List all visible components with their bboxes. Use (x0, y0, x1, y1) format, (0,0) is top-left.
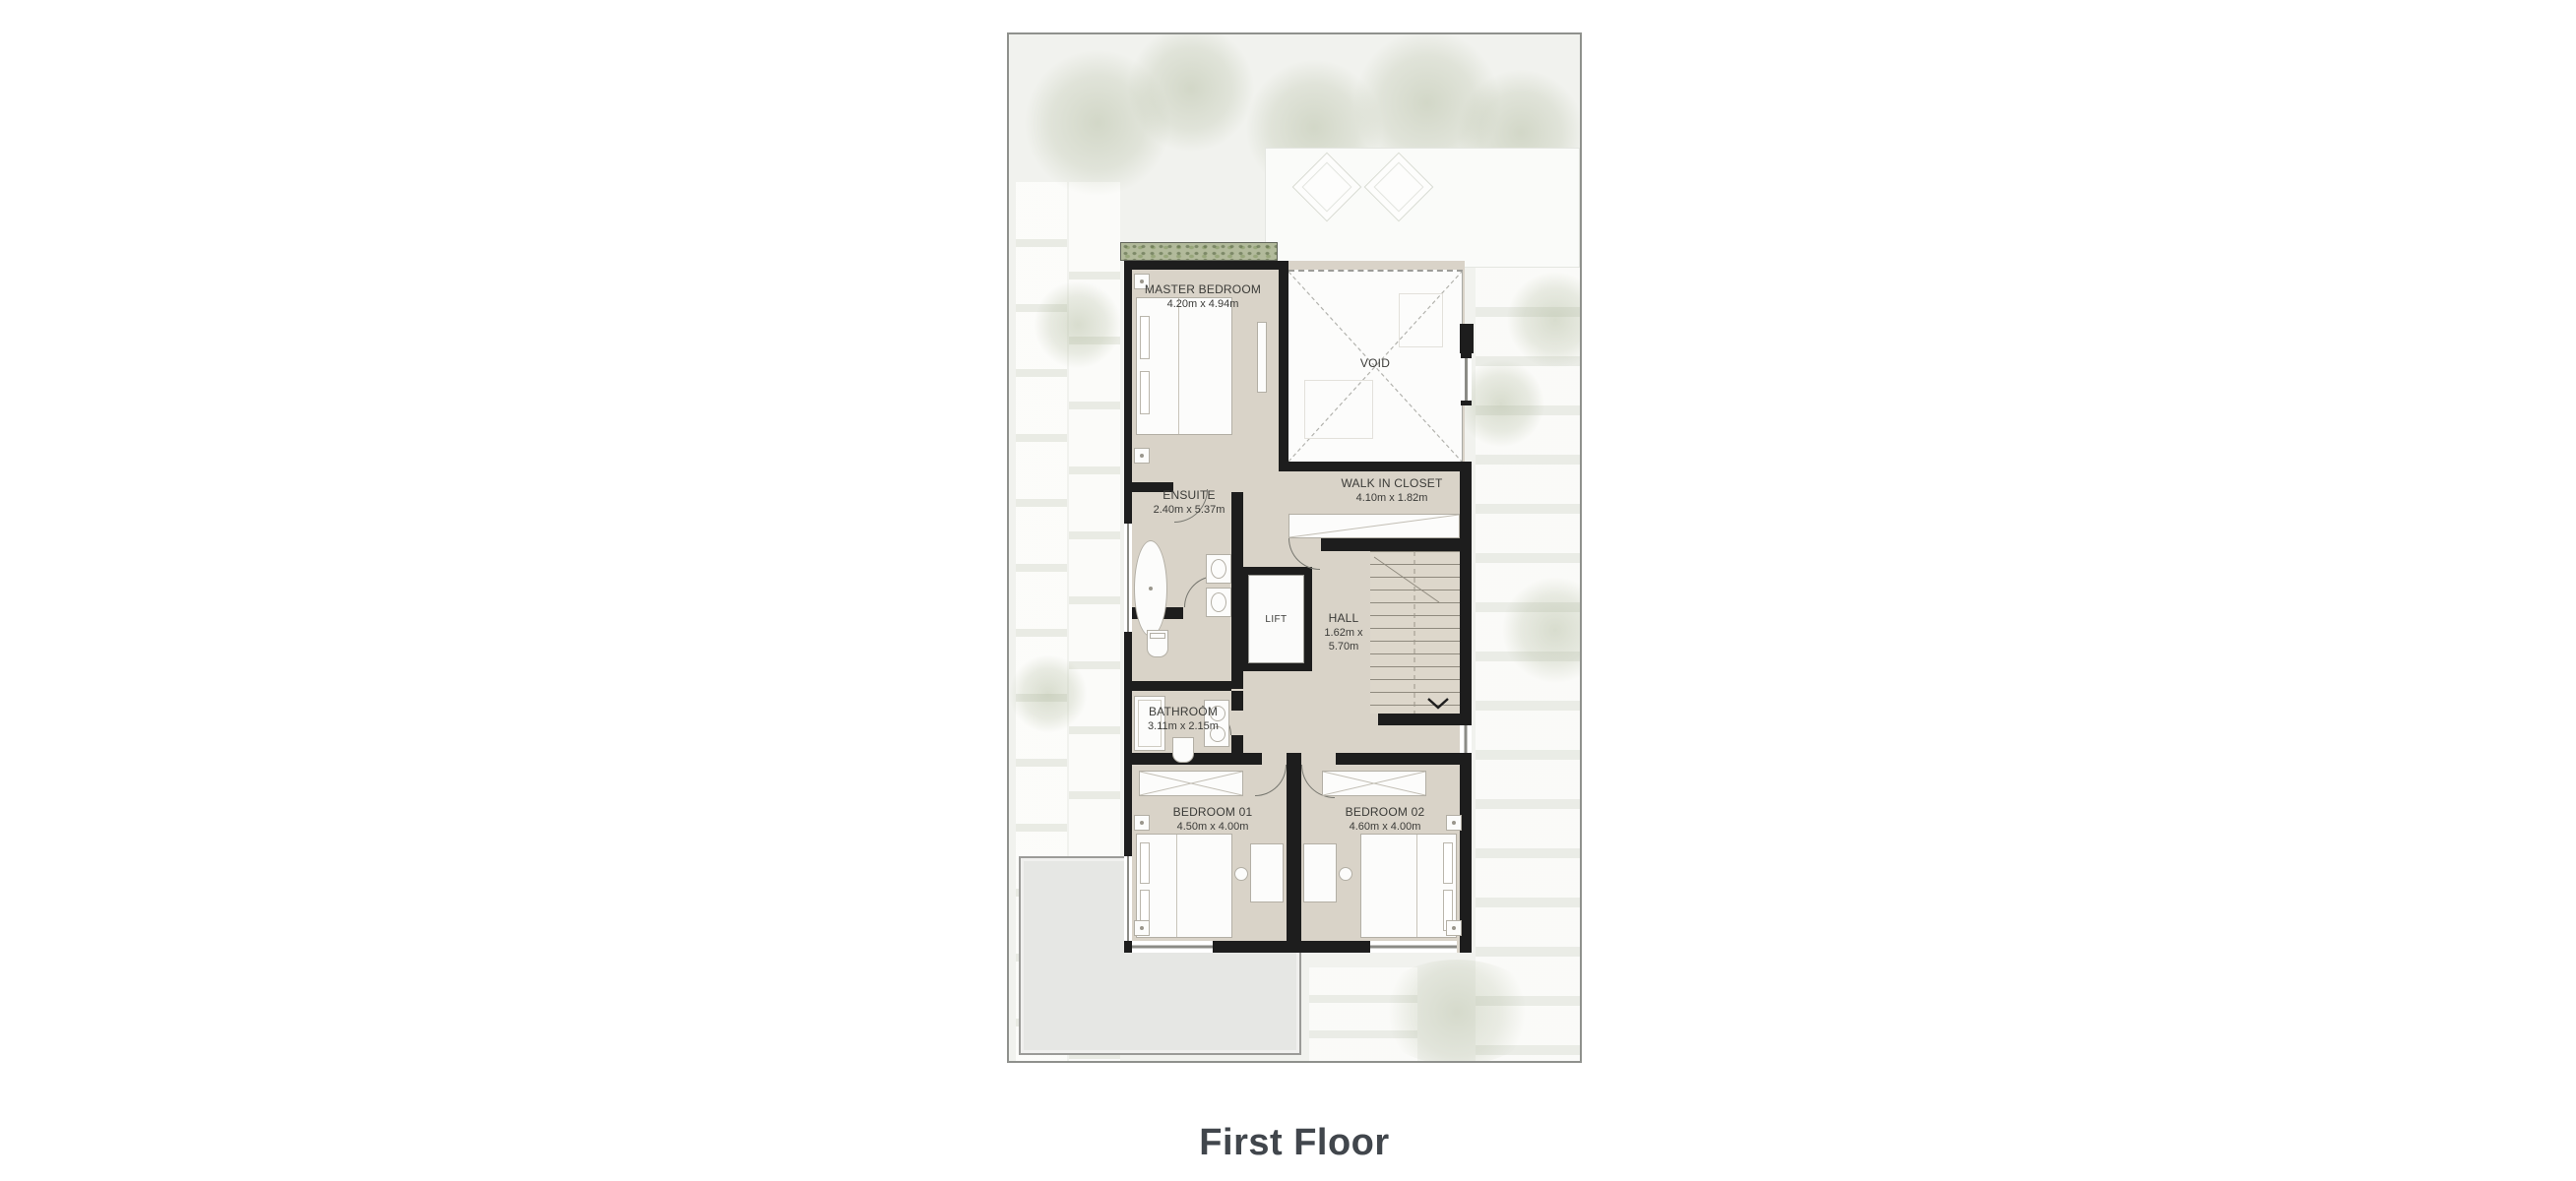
wall (1460, 324, 1474, 353)
room-label-void: VOID (1336, 356, 1414, 371)
chair (1234, 867, 1248, 881)
nightstand (1134, 920, 1150, 936)
closet-lines (1140, 772, 1242, 795)
desk (1250, 843, 1284, 902)
room-dims: 4.10m x 1.82m (1323, 492, 1461, 506)
window (1124, 524, 1132, 632)
wall (1287, 753, 1301, 765)
sink (1206, 554, 1231, 584)
room-name: BEDROOM 02 (1326, 805, 1444, 820)
desk (1303, 843, 1337, 902)
closet-lines (1323, 772, 1425, 795)
room-label-bedroom-01: BEDROOM 01 4.50m x 4.00m (1154, 805, 1272, 835)
lounge-chair-detail (1302, 162, 1352, 213)
page-title: First Floor (1098, 1122, 1491, 1164)
closet-rail-line (1289, 515, 1459, 537)
nightstand (1134, 815, 1150, 831)
tree (1127, 32, 1255, 153)
room-dims: 1.62m x 5.70m (1312, 627, 1375, 654)
wall (1124, 681, 1231, 691)
room-label-ensuite: ENSUITE 2.40m x 5.37m (1130, 488, 1248, 518)
basin (1211, 592, 1226, 612)
tree (1373, 960, 1540, 1063)
room-label-master-bedroom: MASTER BEDROOM 4.20m x 4.94m (1144, 282, 1262, 312)
stairs-down-arrow-icon (1427, 698, 1449, 710)
window (1460, 725, 1472, 753)
room-dims: 4.60m x 4.00m (1326, 821, 1444, 835)
toilet (1172, 737, 1194, 763)
room-name: BEDROOM 01 (1154, 805, 1272, 820)
room-name: BATHROOM (1124, 705, 1242, 719)
bed (1136, 297, 1232, 435)
wall (1124, 632, 1132, 856)
window (1461, 353, 1472, 405)
room-dims: 2.40m x 5.37m (1130, 504, 1248, 518)
wall (1213, 941, 1370, 953)
lounge-chair-detail (1374, 162, 1424, 213)
room-dims: 3.11m x 2.15m (1124, 720, 1242, 734)
lamp (1452, 821, 1456, 825)
blanket-line (1416, 835, 1417, 937)
roof-deck (1265, 148, 1580, 268)
nightstand (1446, 815, 1462, 831)
window (1124, 856, 1132, 941)
drain (1149, 587, 1153, 590)
bed (1360, 834, 1457, 938)
room-name: ENSUITE (1130, 488, 1248, 503)
bathtub (1134, 540, 1167, 637)
room-label-hall: HALL 1.62m x 5.70m (1312, 611, 1375, 654)
room-name: VOID (1336, 356, 1414, 371)
pillow (1140, 842, 1150, 884)
closet (1322, 771, 1426, 796)
toilet (1147, 630, 1168, 657)
bed (1136, 834, 1232, 938)
sink (1206, 588, 1231, 617)
wall (1124, 261, 1288, 270)
room-dims: 4.20m x 4.94m (1144, 298, 1262, 312)
blanket-line (1178, 298, 1179, 434)
room-label-walk-in-closet: WALK IN CLOSET 4.10m x 1.82m (1323, 476, 1461, 506)
lamp (1452, 926, 1456, 930)
lamp (1140, 454, 1144, 458)
lamp (1140, 926, 1144, 930)
site-plan: LIFT (1007, 32, 1582, 1063)
planter (1120, 242, 1278, 261)
wall (1279, 462, 1472, 471)
pillow (1443, 842, 1453, 884)
cistern (1150, 633, 1165, 639)
lift-label: LIFT (1265, 614, 1287, 625)
window (1370, 941, 1457, 953)
pillow (1140, 316, 1150, 359)
stair-lines (1370, 551, 1460, 714)
room-name: WALK IN CLOSET (1323, 476, 1461, 491)
tree (1009, 654, 1088, 733)
nightstand (1446, 920, 1462, 936)
ghost-furniture (1304, 380, 1373, 439)
dresser (1257, 322, 1267, 393)
pillow (1140, 371, 1150, 414)
wall (1321, 538, 1460, 551)
wall (1460, 471, 1472, 725)
room-label-bathroom: BATHROOM 3.11m x 2.15m (1124, 705, 1242, 734)
tree (1034, 280, 1122, 369)
window (1132, 941, 1213, 953)
ghost-furniture (1399, 293, 1443, 347)
closet (1139, 771, 1243, 796)
lift-shaft: LIFT (1240, 567, 1312, 671)
room-label-bedroom-02: BEDROOM 02 4.60m x 4.00m (1326, 805, 1444, 835)
wall (1231, 735, 1243, 753)
nightstand (1134, 448, 1150, 464)
blanket-line (1176, 835, 1177, 937)
wall (1287, 765, 1301, 953)
wall (1378, 714, 1460, 725)
room-dims: 4.50m x 4.00m (1154, 821, 1272, 835)
wall (1124, 941, 1132, 953)
room-name: MASTER BEDROOM (1144, 282, 1262, 297)
lounge-chair (1364, 153, 1434, 222)
staircase (1370, 551, 1460, 714)
chair (1339, 867, 1352, 881)
lounge-chair (1292, 153, 1362, 222)
basin (1211, 559, 1226, 579)
wall (1336, 753, 1460, 765)
room-name: HALL (1312, 611, 1375, 626)
wall (1279, 261, 1288, 471)
closet-rail (1288, 514, 1460, 538)
lamp (1140, 821, 1144, 825)
